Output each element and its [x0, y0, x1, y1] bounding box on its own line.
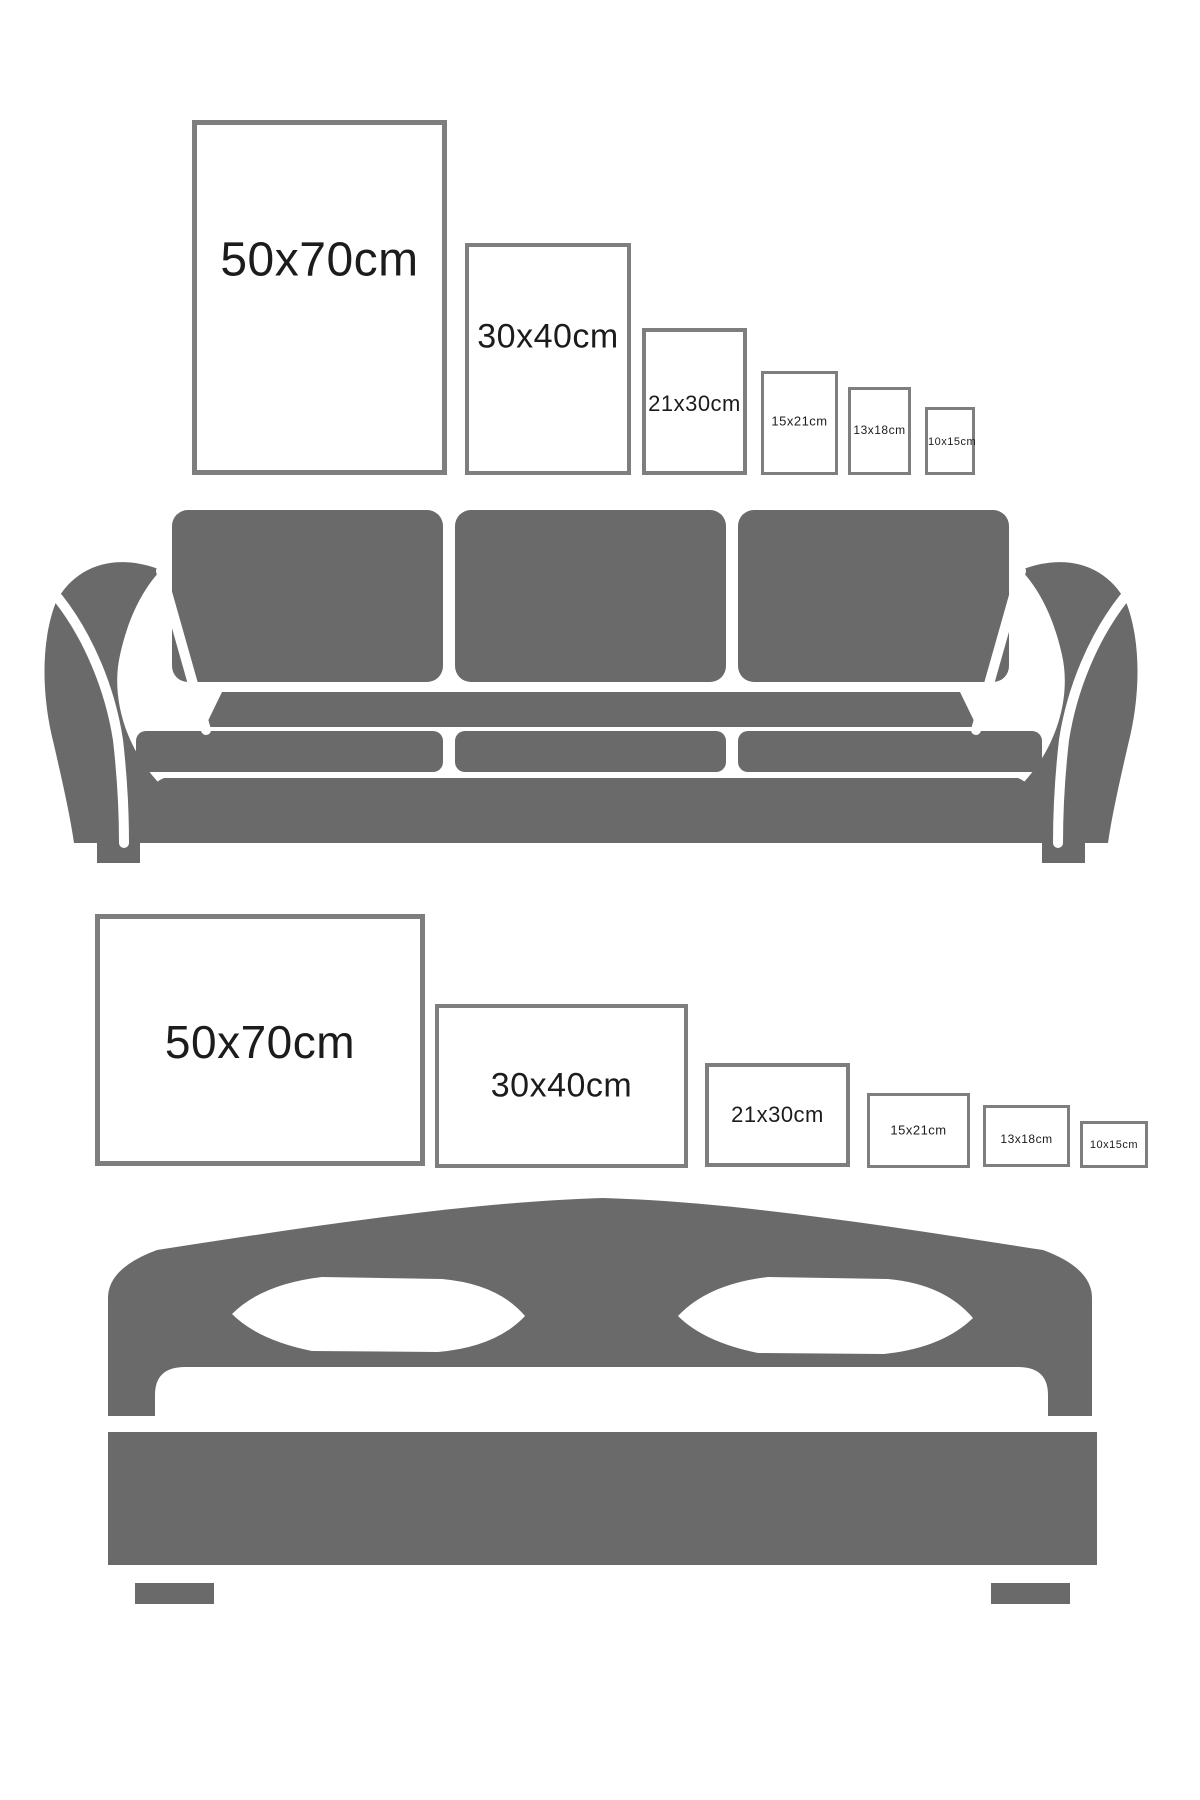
size-frame-label: 21x30cm [709, 1102, 846, 1128]
bed-foot-left [135, 1583, 214, 1604]
sofa-seat-cushion-left [136, 731, 443, 772]
bed-illustration [100, 1190, 1105, 1610]
size-frame-label: 15x21cm [870, 1122, 967, 1137]
sofa-illustration [40, 440, 1140, 870]
size-frame-landscape-15x21: 15x21cm [867, 1093, 970, 1168]
size-frame-label: 30x40cm [469, 317, 627, 356]
sofa-back-cushion-left [172, 510, 443, 682]
size-frame-label: 10x15cm [1083, 1139, 1145, 1151]
sofa-leg-left [97, 843, 140, 863]
sofa-deck [205, 692, 977, 727]
size-frame-landscape-13x18: 13x18cm [983, 1105, 1070, 1167]
size-frame-landscape-30x40: 30x40cm [435, 1004, 688, 1168]
sofa-back-cushion-right [738, 510, 1009, 682]
size-frame-label: 50x70cm [100, 1015, 420, 1069]
sofa-seat-cushion-middle [455, 731, 726, 772]
sofa-leg-right [1042, 843, 1085, 863]
size-frame-landscape-10x15: 10x15cm [1080, 1121, 1148, 1168]
size-frame-label: 50x70cm [197, 232, 442, 287]
size-frame-label: 15x21cm [764, 414, 835, 429]
size-frame-label: 21x30cm [646, 391, 743, 417]
size-frame-label: 13x18cm [986, 1132, 1067, 1146]
size-frame-label: 13x18cm [851, 423, 908, 437]
size-frame-landscape-21x30: 21x30cm [705, 1063, 850, 1167]
sofa-seat-cushion-right [738, 731, 1042, 772]
size-frame-label: 30x40cm [439, 1067, 684, 1106]
bed-pillow-right [678, 1277, 973, 1354]
sofa-back-cushion-middle [455, 510, 726, 682]
sofa-base [137, 778, 1045, 843]
bed-base [108, 1432, 1097, 1565]
size-frame-portrait-50x70: 50x70cm [192, 120, 447, 475]
size-frame-landscape-50x70: 50x70cm [95, 914, 425, 1166]
poster-size-guide: 50x70cm30x40cm21x30cm15x21cm13x18cm10x15… [0, 0, 1200, 1800]
bed-pillow-left [232, 1277, 525, 1352]
bed-foot-right [991, 1583, 1070, 1604]
